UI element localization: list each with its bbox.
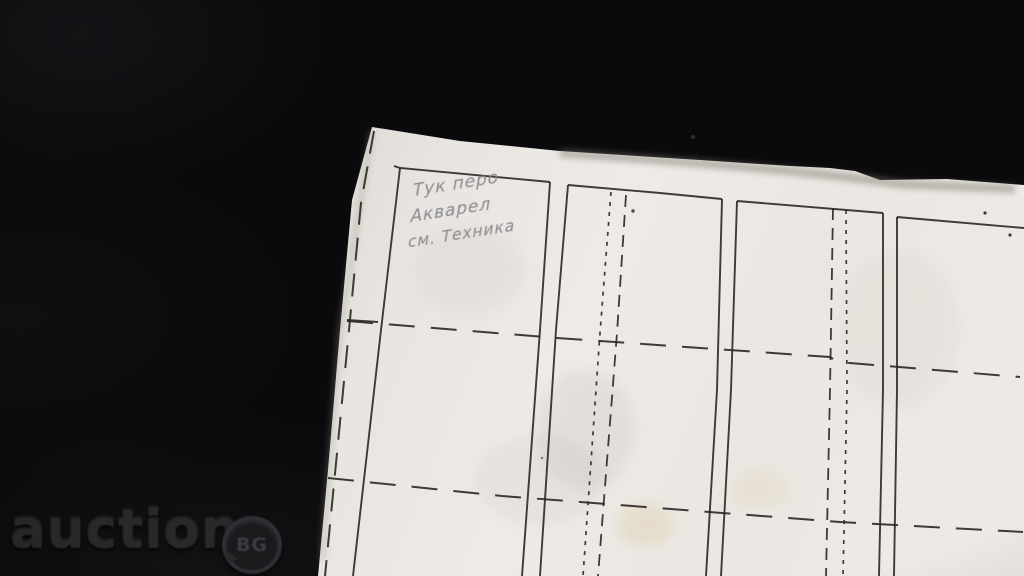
watermark-bg-badge: BG: [222, 516, 282, 574]
watermark-brand-text: auction: [10, 500, 240, 561]
watermark-logo: auction BG: [10, 500, 240, 561]
paper-sheet-photo: [0, 0, 1024, 576]
watermark-badge-text: BG: [236, 534, 268, 556]
auction-photo-scene: Тук перо Акварел см. Техника auction BG: [0, 0, 1024, 576]
